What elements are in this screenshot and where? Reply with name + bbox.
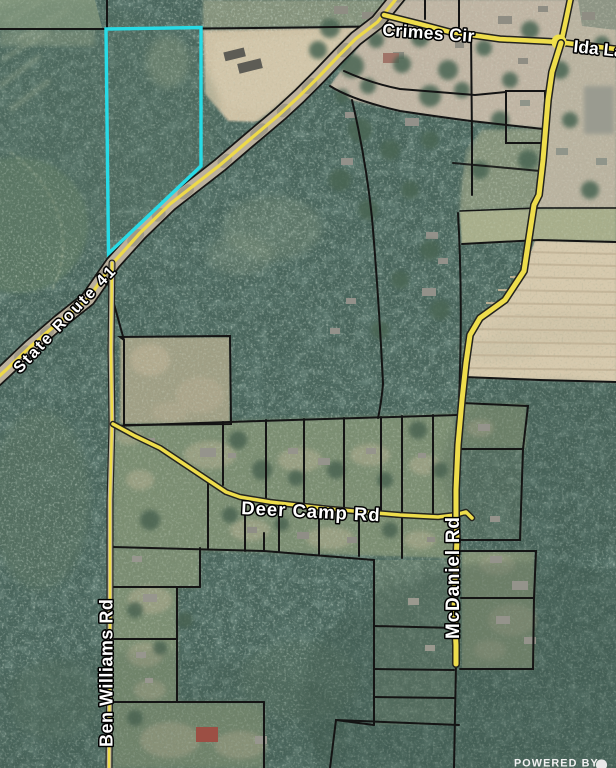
svg-text:POWERED BY: POWERED BY bbox=[514, 758, 599, 768]
svg-text:McDaniel Rd: McDaniel Rd bbox=[443, 516, 464, 639]
svg-text:Ben Williams Rd: Ben Williams Rd bbox=[97, 599, 117, 747]
